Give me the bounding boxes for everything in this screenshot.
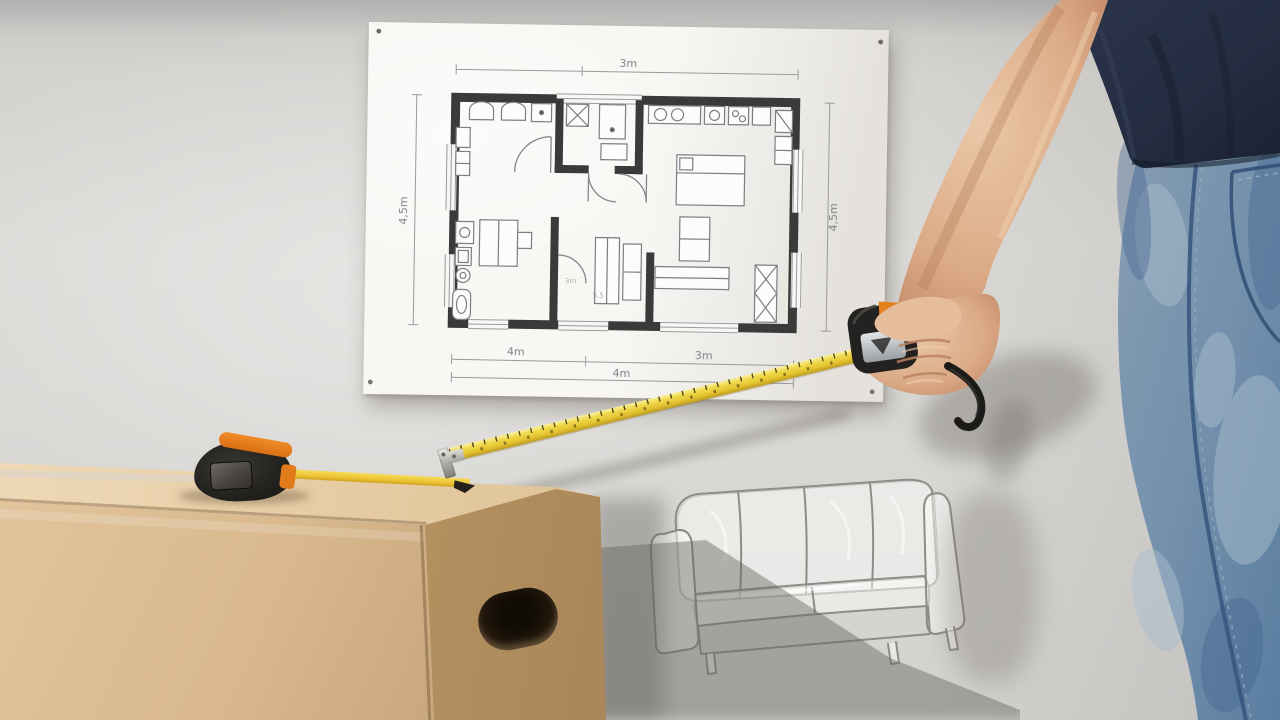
plan-corridor-label-1: 3m	[565, 277, 577, 285]
plan-corridor-label-2: 5,5	[593, 291, 604, 299]
tape-measure-2-mouth	[279, 464, 297, 490]
pin-top-left	[376, 29, 381, 34]
dim-right-label: 4,5m	[827, 203, 840, 231]
dim-bottom-right-label: 3m	[695, 349, 713, 362]
tape-measure-2-window	[210, 461, 253, 491]
dim-top-label: 3m	[619, 57, 637, 70]
plan-furniture	[452, 101, 792, 324]
dim-bottom-left-label: 4m	[507, 345, 525, 358]
floor-plan-drawing: 3m 5,5 3m 4,5m 4,5m 4m 3m 4m	[363, 22, 889, 402]
pin-bottom-left	[368, 380, 373, 385]
floor-plan-paper: 3m 5,5 3m 4,5m 4,5m 4m 3m 4m	[363, 22, 889, 402]
dim-left-label: 4,5m	[397, 196, 410, 224]
pin-top-right	[878, 40, 883, 45]
scene-room-photo: 3m 5,5 3m 4,5m 4,5m 4m 3m 4m	[0, 0, 1280, 720]
pin-bottom-right	[870, 389, 875, 394]
leg-cast-shadow	[945, 492, 1037, 682]
moving-box	[0, 443, 630, 720]
dim-bottom-overall-label: 4m	[613, 367, 631, 380]
